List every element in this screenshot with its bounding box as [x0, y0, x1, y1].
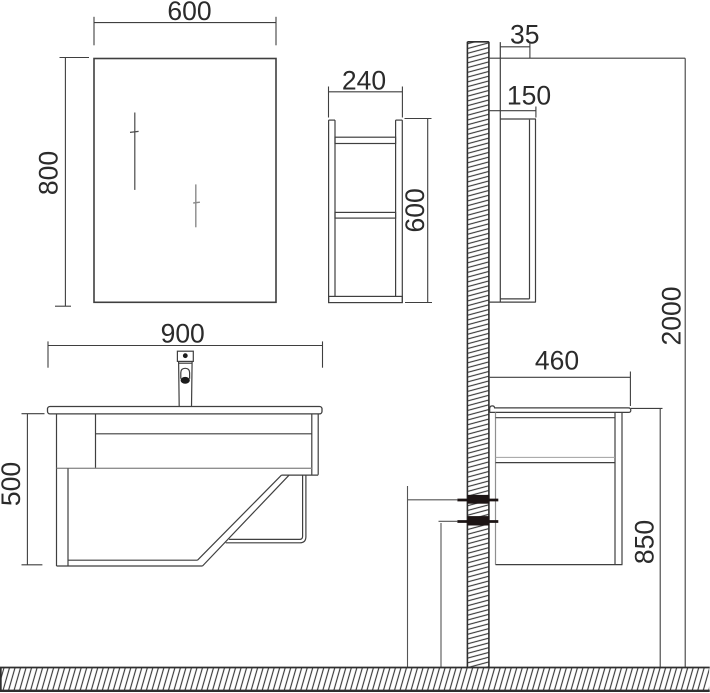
svg-text:460: 460	[535, 345, 579, 375]
svg-text:600: 600	[167, 0, 211, 26]
svg-text:850: 850	[630, 520, 660, 564]
svg-text:240: 240	[342, 66, 386, 96]
svg-text:500: 500	[0, 462, 26, 506]
svg-text:800: 800	[33, 151, 63, 195]
svg-text:150: 150	[507, 81, 551, 111]
svg-text:600: 600	[400, 188, 430, 232]
svg-text:2000: 2000	[656, 287, 686, 346]
svg-text:35: 35	[510, 19, 539, 49]
svg-text:900: 900	[161, 318, 205, 348]
